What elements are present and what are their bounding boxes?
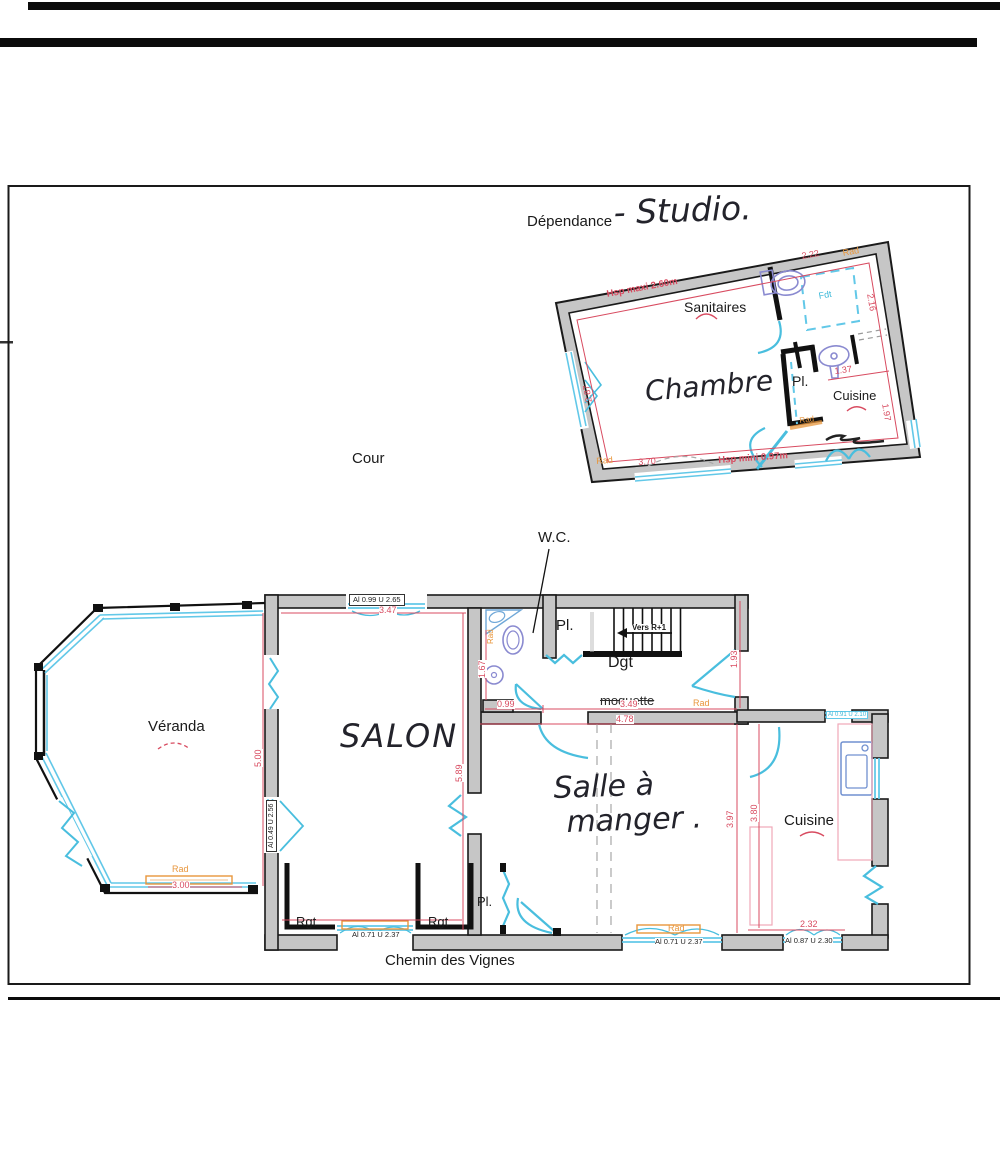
dim-veranda-width: 3.00 [172,881,190,890]
dim-salon-top: 3.47 [379,606,397,615]
window-label-salon-left: Al 0.49 U 2.56 [266,800,277,852]
annex-title: Dépendance [527,214,612,229]
floor-plan-document: Dépendance - Studio. Cour W.C. Chemin de… [0,0,1000,1161]
dim-dining-height: 3.97 [726,810,735,828]
wc-fixtures [485,610,523,684]
radiator-label-veranda: Rad [172,865,189,874]
window-label-salon-top: Al 0.99 U 2.65 [349,594,405,606]
dim-cuisine-height: 3.80 [750,804,759,822]
dim-salon-height: 5.89 [455,764,464,782]
room-label-studio-closet: Pl. [792,374,808,388]
street-label: Chemin des Vignes [385,953,515,968]
dim-studio-right: 2.16 [865,293,877,312]
radiator-label-hall: Rad [693,699,710,708]
dim-studio-cuisine-h: 1.97 [880,403,892,422]
page-chrome [0,2,1000,1000]
window-label-salon-bottom: Al 0.71 U 2.37 [352,931,400,939]
radiator-label-dining: Rad [668,924,685,933]
dim-cuisine-width: 2.32 [800,920,818,929]
room-label-dining-2: manger . [566,803,702,838]
room-label-closet-top: Pl. [556,618,574,633]
window-label-cuisine-bottom: Al 0.87 U 2.30 [785,937,833,945]
dim-dining-width: 4.78 [616,715,634,724]
house-plan [34,549,888,950]
dim-studio-bottom: 3.70 [638,457,656,467]
room-label-salon: SALON [340,720,458,752]
dim-veranda-height: 5.00 [254,749,263,767]
dim-hall-height: 1.93 [730,650,739,668]
dim-wc-height: 1.67 [478,660,487,678]
dim-wc-width: 0.99 [497,700,515,709]
dim-hall-width: 3.49 [620,700,638,709]
room-label-storage-right: Rgt [428,915,448,928]
room-label-house-cuisine: Cuisine [784,813,834,828]
radiator-label-studio-bl: Rad [596,456,613,466]
courtyard-label: Cour [352,451,385,466]
window-label-dining-bottom: Al 0.71 U 2.37 [655,938,703,946]
radiator-label-wc: Rad [487,629,495,644]
room-label-hall: Dgt [608,655,633,671]
stairs-direction-note: Vers R+1 [630,624,668,632]
studio-plan [556,242,920,482]
floor-plan-graphics [0,0,1000,1161]
stairs [583,608,682,657]
room-label-storage-left: Rgt [296,915,316,928]
wc-note-label: W.C. [538,530,571,545]
annex-title-handwritten: - Studio. [613,191,752,229]
window-label-cuisine-top: Al 0.91 U 2.10 [826,711,868,719]
room-label-sanitaires: Sanitaires [684,300,746,314]
room-label-studio-cuisine: Cuisine [833,389,876,402]
room-label-dining-1: Salle à [553,770,654,803]
room-label-closet-bottom: Pl. [477,895,492,908]
room-label-veranda: Véranda [148,719,205,734]
veranda-bay [34,601,265,893]
